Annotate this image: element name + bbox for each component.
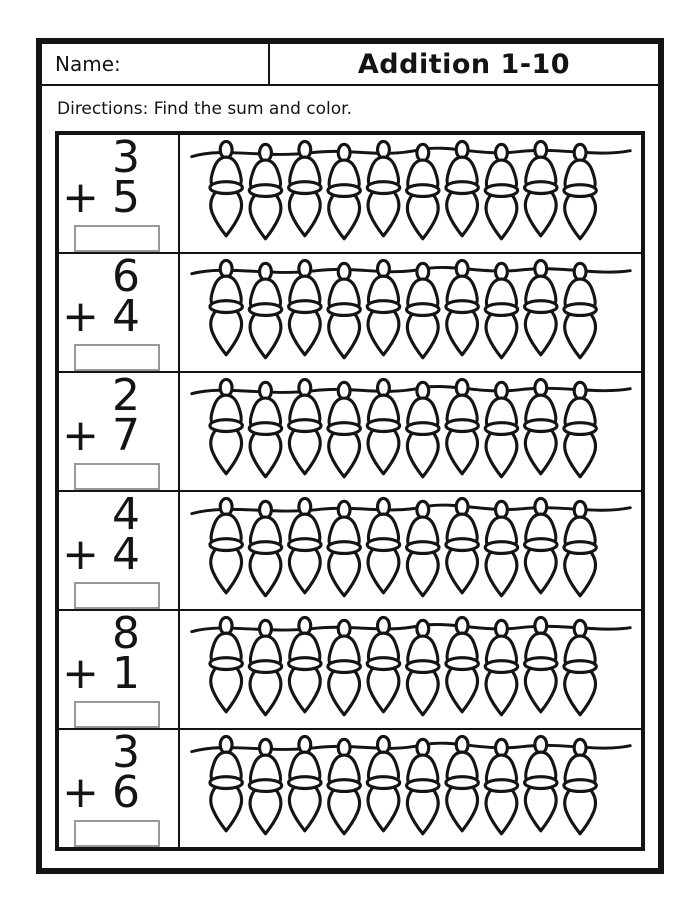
light-bulb-icon[interactable] [249, 620, 281, 714]
worksheet-border: Name: Addition 1-10 Directions: Find the… [36, 38, 664, 874]
string-line [192, 743, 631, 751]
light-bulb-icon[interactable] [367, 736, 399, 830]
light-bulb-icon[interactable] [249, 144, 281, 238]
light-bulb-icon[interactable] [210, 379, 242, 473]
equation-cell: 3 + 6 [59, 730, 180, 847]
problem-row-4: 4 + 4 [59, 492, 641, 611]
light-bulb-icon[interactable] [407, 263, 439, 357]
answer-box[interactable] [74, 463, 160, 490]
string-line [192, 625, 631, 632]
problem-row-6: 3 + 6 [59, 730, 641, 847]
lights-cell [180, 611, 641, 728]
light-bulb-icon[interactable] [446, 617, 478, 711]
christmas-lights-row[interactable] [180, 492, 641, 609]
light-bulb-icon[interactable] [289, 617, 321, 711]
light-bulb-icon[interactable] [210, 736, 242, 830]
name-label: Name: [55, 52, 121, 76]
light-bulb-icon[interactable] [485, 739, 517, 833]
light-bulb-icon[interactable] [210, 498, 242, 592]
light-bulb-icon[interactable] [525, 498, 557, 592]
christmas-lights-row[interactable] [180, 135, 641, 252]
light-bulb-icon[interactable] [210, 141, 242, 235]
light-bulb-icon[interactable] [564, 620, 596, 714]
addend-bottom: 4 [112, 535, 140, 575]
addend-bottom: 6 [112, 773, 140, 813]
christmas-lights-row[interactable] [180, 373, 641, 490]
light-bulb-icon[interactable] [525, 141, 557, 235]
name-input-area[interactable] [121, 44, 268, 84]
name-cell: Name: [42, 44, 270, 84]
light-bulb-icon[interactable] [446, 379, 478, 473]
light-bulb-icon[interactable] [525, 260, 557, 354]
light-bulb-icon[interactable] [564, 144, 596, 238]
light-bulb-icon[interactable] [210, 617, 242, 711]
plus-sign: + [62, 178, 99, 218]
light-bulb-icon[interactable] [485, 620, 517, 714]
problem-row-3: 2 + 7 [59, 373, 641, 492]
problem-row-1: 3 + 5 [59, 135, 641, 254]
plus-sign: + [62, 416, 99, 456]
plus-sign: + [62, 297, 99, 337]
lights-cell [180, 492, 641, 609]
addend-bottom: 5 [112, 178, 140, 218]
equation-cell: 4 + 4 [59, 492, 180, 609]
worksheet-page: Name: Addition 1-10 Directions: Find the… [0, 0, 700, 906]
addend-bottom: 1 [112, 654, 140, 694]
light-bulb-icon[interactable] [446, 141, 478, 235]
light-bulb-icon[interactable] [249, 382, 281, 476]
light-bulb-icon[interactable] [367, 141, 399, 235]
light-bulb-icon[interactable] [446, 736, 478, 830]
light-bulb-icon[interactable] [407, 382, 439, 476]
light-bulb-icon[interactable] [485, 144, 517, 238]
equation-cell: 2 + 7 [59, 373, 180, 490]
light-bulb-icon[interactable] [210, 260, 242, 354]
light-bulb-icon[interactable] [407, 501, 439, 595]
light-bulb-icon[interactable] [485, 501, 517, 595]
answer-box[interactable] [74, 344, 160, 371]
light-bulb-icon[interactable] [407, 739, 439, 833]
light-bulb-icon[interactable] [249, 501, 281, 595]
plus-sign: + [62, 654, 99, 694]
light-bulb-icon[interactable] [564, 739, 596, 833]
header: Name: Addition 1-10 [42, 44, 658, 86]
light-bulb-icon[interactable] [446, 260, 478, 354]
equation: 3 + 6 [59, 733, 178, 813]
light-bulb-icon[interactable] [485, 263, 517, 357]
problems-table: 3 + 5 6 [55, 131, 645, 851]
equation-cell: 6 + 4 [59, 254, 180, 371]
lights-cell [180, 135, 641, 252]
light-bulb-icon[interactable] [564, 501, 596, 595]
lights-cell [180, 373, 641, 490]
equation: 2 + 7 [59, 376, 178, 456]
light-bulb-icon[interactable] [328, 263, 360, 357]
page-title: Addition 1-10 [358, 49, 570, 80]
answer-box[interactable] [74, 820, 160, 847]
light-bulb-icon[interactable] [564, 382, 596, 476]
christmas-lights-row[interactable] [180, 730, 641, 847]
problem-row-5: 8 + 1 [59, 611, 641, 730]
plus-sign: + [62, 535, 99, 575]
light-bulb-icon[interactable] [289, 498, 321, 592]
title-cell: Addition 1-10 [270, 44, 658, 84]
christmas-lights-row[interactable] [180, 254, 641, 371]
equation: 3 + 5 [59, 138, 178, 218]
addend-bottom: 7 [112, 416, 140, 456]
string-line [192, 148, 631, 156]
light-bulb-icon[interactable] [328, 501, 360, 595]
light-bulb-icon[interactable] [564, 263, 596, 357]
light-bulb-icon[interactable] [407, 144, 439, 238]
light-bulb-icon[interactable] [367, 617, 399, 711]
light-bulb-icon[interactable] [367, 498, 399, 592]
string-line [192, 505, 631, 514]
light-bulb-icon[interactable] [289, 141, 321, 235]
plus-sign: + [62, 773, 99, 813]
string-line [192, 387, 631, 394]
light-bulb-icon[interactable] [249, 739, 281, 833]
directions-row: Directions: Find the sum and color. [42, 86, 658, 131]
light-bulb-icon[interactable] [328, 144, 360, 238]
directions-text: Directions: Find the sum and color. [57, 99, 352, 119]
equation: 8 + 1 [59, 614, 178, 694]
equation: 6 + 4 [59, 257, 178, 337]
light-bulb-icon[interactable] [328, 620, 360, 714]
lights-cell [180, 254, 641, 371]
problem-row-2: 6 + 4 [59, 254, 641, 373]
addend-bottom: 4 [112, 297, 140, 337]
light-bulb-icon[interactable] [328, 382, 360, 476]
answer-box[interactable] [74, 582, 160, 609]
answer-box[interactable] [74, 701, 160, 728]
answer-box[interactable] [74, 225, 160, 252]
light-bulb-icon[interactable] [525, 617, 557, 711]
christmas-lights-row[interactable] [180, 611, 641, 728]
light-bulb-icon[interactable] [525, 736, 557, 830]
equation-cell: 3 + 5 [59, 135, 180, 252]
equation: 4 + 4 [59, 495, 178, 575]
light-bulb-icon[interactable] [407, 620, 439, 714]
light-bulb-icon[interactable] [367, 260, 399, 354]
light-bulb-icon[interactable] [446, 498, 478, 592]
light-bulb-icon[interactable] [367, 379, 399, 473]
equation-cell: 8 + 1 [59, 611, 180, 728]
string-line [192, 267, 631, 273]
light-bulb-icon[interactable] [525, 379, 557, 473]
light-bulb-icon[interactable] [328, 739, 360, 833]
lights-cell [180, 730, 641, 847]
light-bulb-icon[interactable] [289, 260, 321, 354]
light-bulb-icon[interactable] [485, 382, 517, 476]
light-bulb-icon[interactable] [249, 263, 281, 357]
